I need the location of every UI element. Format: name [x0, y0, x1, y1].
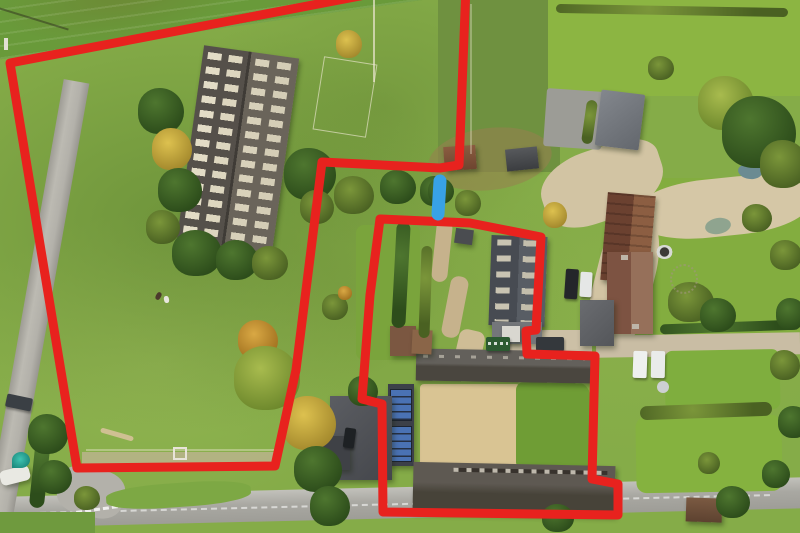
- grass-below-road: [0, 512, 95, 533]
- roof-vents: [423, 354, 585, 360]
- tree: [428, 178, 454, 204]
- field-gate: [173, 447, 187, 460]
- tree: [648, 56, 674, 80]
- tree: [294, 446, 342, 492]
- chimney: [632, 324, 639, 329]
- tree: [74, 486, 100, 510]
- fence-line: [373, 0, 375, 82]
- tree: [152, 128, 192, 170]
- tree: [698, 452, 720, 474]
- tree: [543, 202, 567, 228]
- tree: [234, 346, 300, 410]
- north-wing-barn: [416, 348, 593, 383]
- tree: [334, 176, 374, 214]
- tree: [760, 140, 800, 188]
- tree: [300, 190, 334, 224]
- tree: [778, 406, 800, 438]
- utility-pole: [4, 38, 8, 50]
- fence-paddock: [313, 56, 378, 138]
- tree: [172, 230, 222, 276]
- tree: [348, 376, 378, 406]
- solar-panel-array: [390, 426, 412, 462]
- rooflight-column: [494, 239, 511, 322]
- white-car: [633, 351, 648, 378]
- solar-panel-array: [390, 389, 412, 421]
- white-car: [579, 272, 592, 298]
- tree: [762, 460, 790, 488]
- tree: [380, 170, 416, 204]
- tree: [700, 298, 736, 332]
- skip-label-stripe: [488, 342, 507, 345]
- teal-parasol: [12, 452, 30, 468]
- dark-van: [536, 337, 564, 351]
- tree: [336, 30, 362, 58]
- roof-vents: [454, 468, 608, 475]
- sand-courtyard: [420, 384, 520, 472]
- south-barn-range: [412, 462, 615, 516]
- rooflight-column: [521, 240, 538, 323]
- tree: [742, 204, 772, 232]
- aerial-photo: [0, 0, 800, 533]
- green-skip: [486, 337, 510, 351]
- small-dark-shed: [505, 146, 539, 171]
- plot-b-lawn: [516, 382, 590, 468]
- fence-line: [470, 4, 472, 154]
- skylight-barn: [488, 235, 547, 327]
- garage-grey-roof: [595, 90, 645, 151]
- chimney: [621, 255, 628, 260]
- round-table: [657, 381, 669, 393]
- farmhouse-grey-wing: [580, 300, 614, 346]
- grazing-animal: [154, 291, 162, 300]
- small-garden-shed: [454, 228, 474, 245]
- grazing-animal: [163, 296, 169, 304]
- stone-circle: [670, 264, 698, 294]
- tree-over-road: [542, 504, 574, 532]
- tree: [455, 190, 481, 216]
- large-agricultural-barn: [177, 45, 299, 252]
- tree: [38, 460, 72, 494]
- black-van: [564, 269, 579, 300]
- tree: [716, 486, 750, 518]
- bush: [338, 286, 352, 300]
- tree: [158, 168, 202, 212]
- tree: [282, 396, 336, 450]
- tree: [770, 350, 800, 380]
- tree: [28, 414, 68, 454]
- tree: [310, 486, 350, 526]
- tree: [776, 298, 800, 330]
- tree: [252, 246, 288, 280]
- tree: [770, 240, 800, 270]
- fallen-log: [100, 427, 134, 441]
- tree: [138, 88, 184, 134]
- white-car: [651, 351, 665, 378]
- corridor-track-1: [431, 219, 453, 282]
- hedge-row: [418, 246, 432, 338]
- patio-table-set: [656, 245, 673, 259]
